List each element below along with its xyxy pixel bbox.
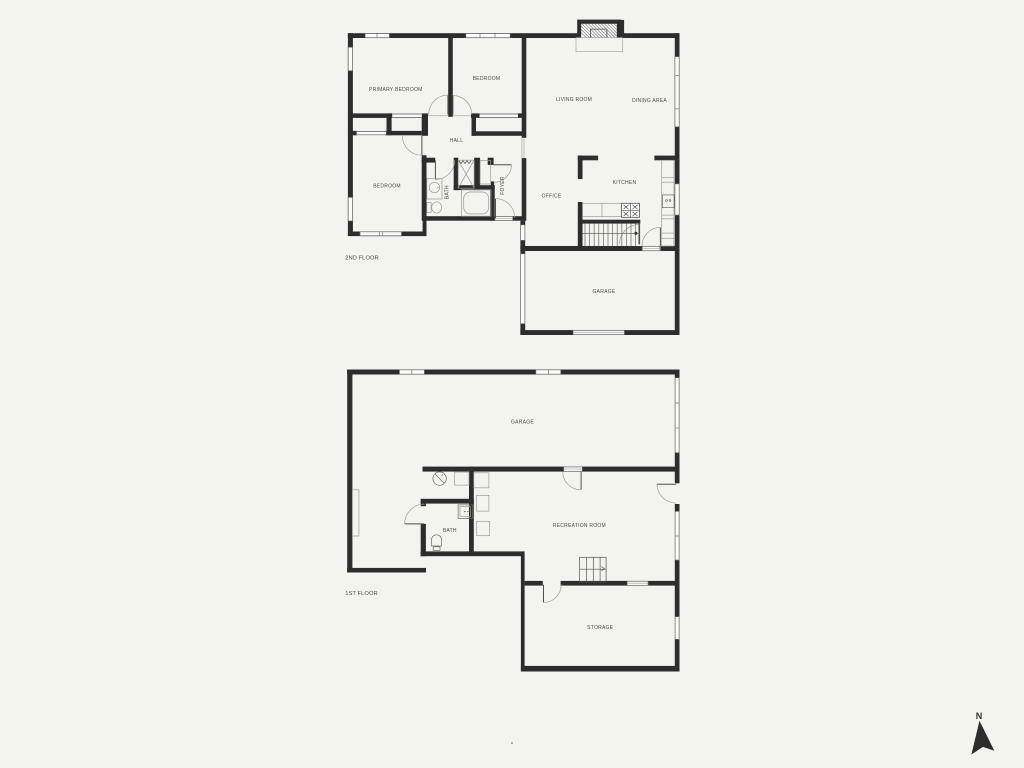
svg-text:N: N [976, 711, 983, 721]
svg-text:PRIMARY BEDROOM: PRIMARY BEDROOM [369, 87, 423, 93]
svg-text:BEDROOM: BEDROOM [373, 183, 401, 189]
svg-text:1ST FLOOR: 1ST FLOOR [345, 591, 378, 597]
svg-text:GARAGE: GARAGE [593, 289, 616, 295]
svg-text:KITCHEN: KITCHEN [613, 180, 637, 186]
svg-text:FOYER: FOYER [500, 176, 506, 195]
svg-text:STORAGE: STORAGE [587, 625, 614, 631]
svg-text:2ND FLOOR: 2ND FLOOR [345, 255, 379, 261]
svg-text:GARAGE: GARAGE [511, 419, 534, 425]
svg-text:BATH: BATH [444, 185, 450, 199]
svg-text:DINING AREA: DINING AREA [632, 98, 667, 104]
svg-text:BATH: BATH [443, 528, 457, 534]
svg-text:HALL: HALL [450, 138, 464, 144]
svg-text:LIVING ROOM: LIVING ROOM [556, 97, 592, 103]
svg-text:OFFICE: OFFICE [542, 193, 562, 199]
svg-text:RECREATION ROOM: RECREATION ROOM [553, 523, 606, 529]
svg-text:BEDROOM: BEDROOM [473, 76, 501, 82]
